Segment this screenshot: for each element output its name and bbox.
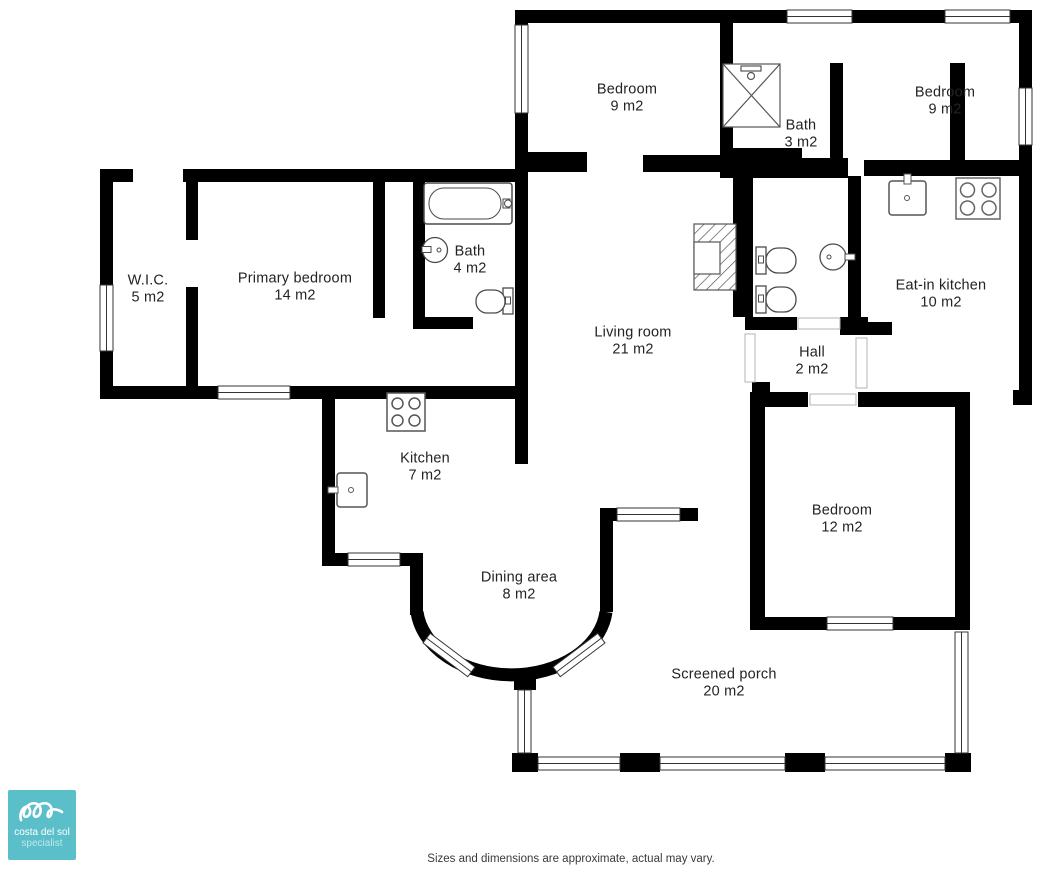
window	[787, 10, 852, 23]
window	[825, 757, 945, 770]
round-sink-icon	[422, 238, 448, 263]
room-label-dining-area: Dining area 8 m2	[481, 570, 557, 603]
room-label-bedroom-right: Bedroom 12 m2	[812, 503, 872, 536]
room-label-wic: W.I.C. 5 m2	[128, 273, 169, 306]
stove-icon	[956, 178, 1000, 219]
door-opening	[798, 318, 840, 329]
window	[1019, 88, 1032, 145]
room-label-primary-bedroom: Primary bedroom 14 m2	[238, 271, 352, 304]
window	[348, 553, 400, 566]
window	[827, 617, 893, 630]
window	[515, 25, 528, 113]
toilet-icon	[756, 247, 796, 274]
floor-plan-page: W.I.C. 5 m2 Primary bedroom 14 m2 Bath 4…	[0, 0, 1051, 875]
floor-plan-drawing	[0, 0, 1051, 875]
window	[553, 633, 605, 676]
window	[218, 386, 290, 399]
room-label-living-room: Living room 21 m2	[594, 325, 671, 358]
fireplace-icon	[694, 224, 736, 290]
door-opening	[856, 338, 867, 388]
shower-icon	[723, 64, 780, 127]
room-label-bedroom-top-right: Bedroom 9 m2	[915, 85, 975, 118]
room-label-bath-primary: Bath 4 m2	[453, 244, 486, 277]
room-label-bath-shower: Bath 3 m2	[784, 118, 817, 151]
room-label-hall: Hall 2 m2	[795, 345, 828, 378]
door-opening	[745, 334, 755, 382]
window	[100, 285, 113, 351]
window	[423, 633, 475, 676]
bathtub-icon	[424, 183, 512, 224]
logo: costa del sol specialist	[8, 790, 76, 860]
toilet-icon	[476, 288, 513, 314]
toilet-icon	[756, 286, 796, 313]
window	[518, 690, 531, 753]
logo-title: costa del sol	[14, 827, 70, 838]
window	[660, 757, 785, 770]
window	[945, 10, 1010, 23]
door-opening	[810, 394, 856, 405]
window	[538, 757, 620, 770]
logo-subtitle: specialist	[21, 838, 62, 849]
bay-curved-wall	[417, 612, 606, 675]
stove-icon	[387, 393, 425, 431]
room-label-screened-porch: Screened porch 20 m2	[671, 667, 776, 700]
disclaimer-text: Sizes and dimensions are approximate, ac…	[427, 853, 714, 865]
room-label-kitchen: Kitchen 7 m2	[400, 451, 450, 484]
kitchen-sink-icon	[889, 174, 926, 215]
window	[617, 508, 680, 521]
room-label-eat-in-kitchen: Eat-in kitchen 10 m2	[896, 278, 987, 311]
logo-scribble-icon	[16, 796, 68, 826]
room-label-bedroom-top-left: Bedroom 9 m2	[597, 82, 657, 115]
window	[955, 632, 968, 753]
